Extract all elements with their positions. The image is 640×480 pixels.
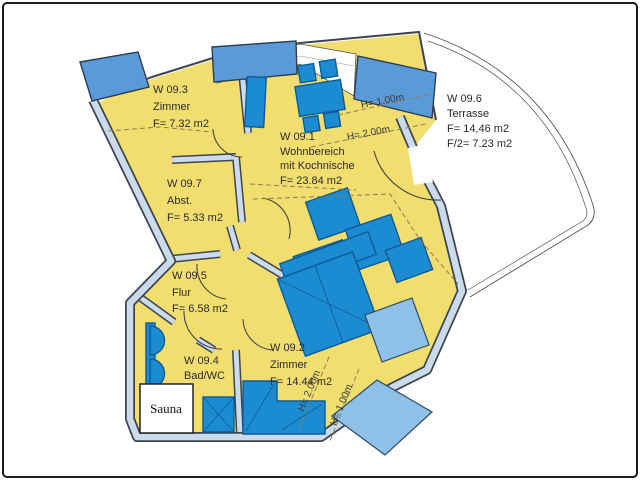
room-w094-id: W 09.4 (184, 355, 219, 367)
balcony-top-center (212, 41, 297, 82)
floorplan-drawing: Sauna H= 1.00m H= 2.00m H= 2.00m H= 1.00… (0, 0, 640, 480)
room-w095-id: W 09.5 (172, 270, 207, 282)
floorplan-page: Sauna H= 1.00m H= 2.00m H= 2.00m H= 1.00… (0, 0, 640, 480)
room-w091-id: W 09.1 (280, 131, 315, 143)
room-w091-name2: mit Kochnische (280, 160, 355, 172)
room-w096-areahalf: F/2= 7.23 m2 (447, 138, 512, 150)
dining-chair (323, 111, 340, 128)
dining-chair (298, 64, 316, 83)
room-w092-area: F= 14.44 m2 (270, 376, 332, 388)
room-w093-area: F= 7.32 m2 (153, 118, 209, 130)
kitchen-counter (245, 77, 267, 128)
room-w095-area: F= 6.58 m2 (172, 303, 228, 315)
room-w093-name: Zimmer (153, 101, 191, 113)
room-w092-name: Zimmer (270, 359, 308, 371)
room-w097-name: Abst. (167, 195, 192, 207)
room-w096-id: W 09.6 (447, 93, 482, 105)
room-w097-area: F= 5.33 m2 (167, 212, 223, 224)
room-w096-name: Terrasse (447, 108, 489, 120)
room-w093-id: W 09.3 (153, 84, 188, 96)
room-w097-id: W 09.7 (167, 178, 202, 190)
room-w091-name1: Wohnbereich (280, 146, 345, 158)
room-w096-area: F= 14,46 m2 (447, 123, 509, 135)
sauna-label: Sauna (150, 401, 182, 416)
room-w092-id: W 09.2 (270, 342, 305, 354)
room-w091-area: F= 23.84 m2 (280, 175, 342, 187)
room-w095-name: Flur (172, 287, 191, 299)
room-w094-name: Bad/WC (184, 370, 225, 382)
dining-chair (319, 59, 337, 78)
